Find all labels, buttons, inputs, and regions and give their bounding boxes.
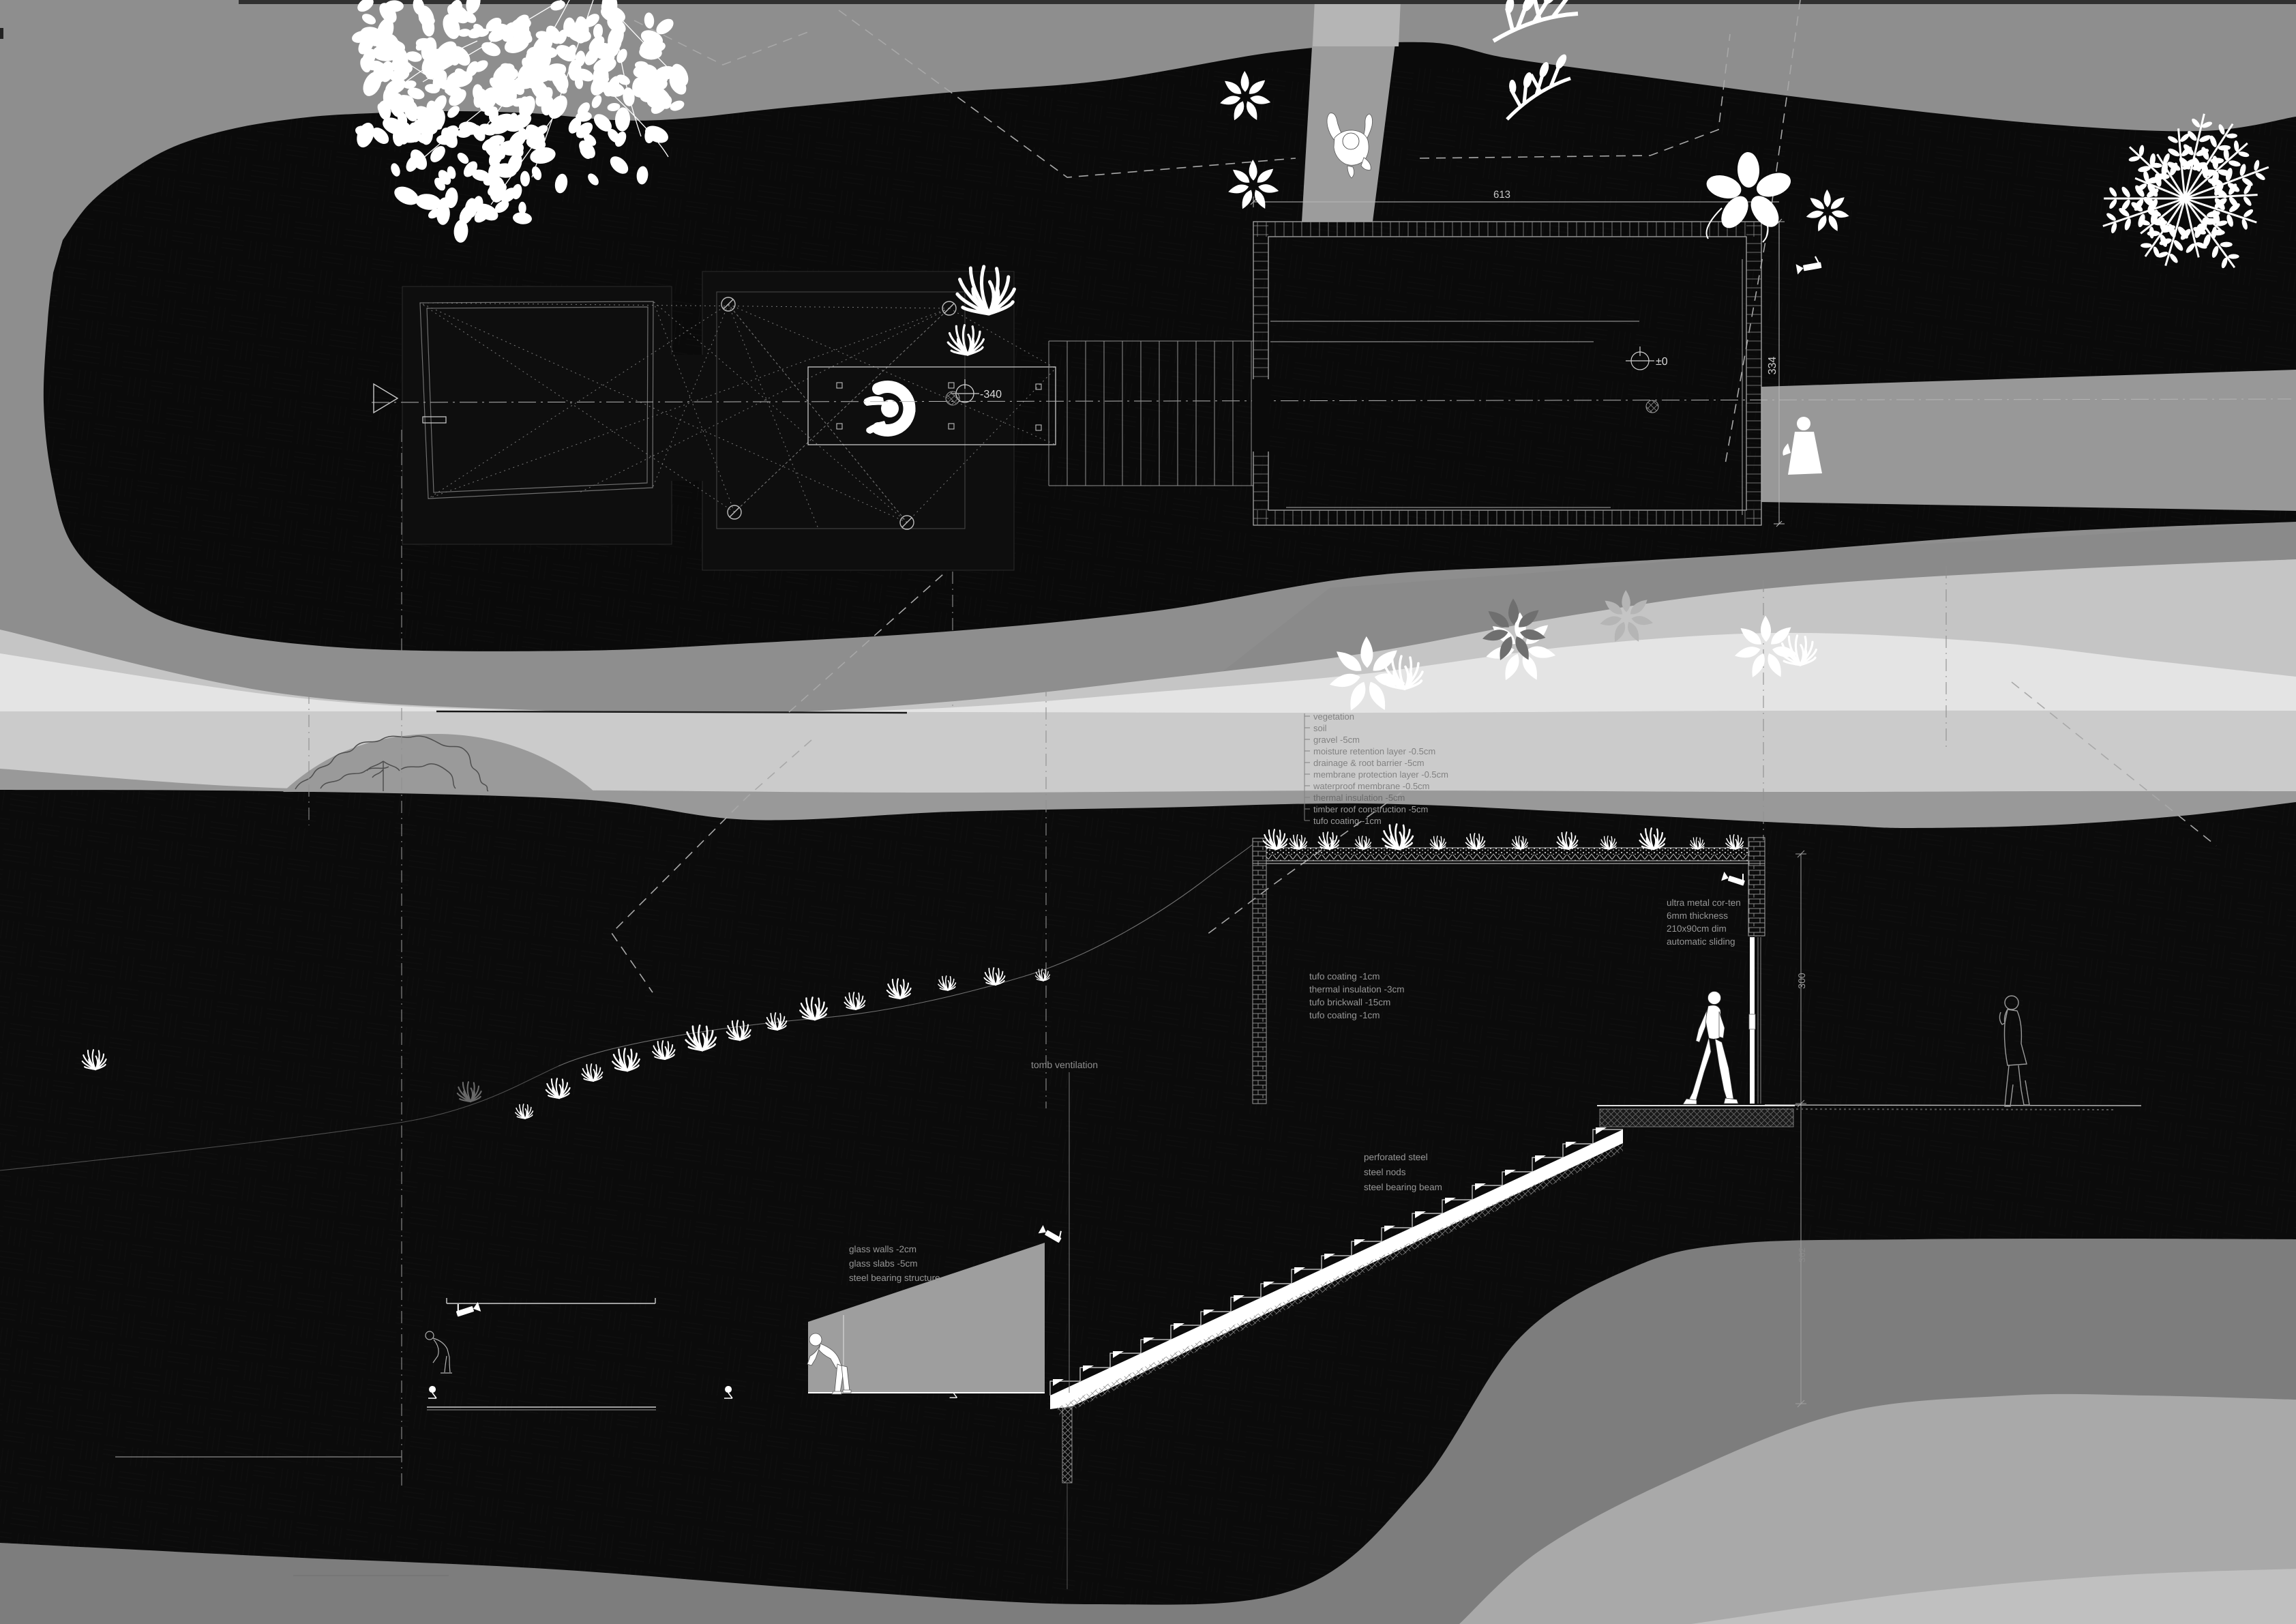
svg-text:vegetation: vegetation — [1313, 711, 1354, 722]
svg-text:glass slabs -5cm: glass slabs -5cm — [849, 1258, 918, 1269]
svg-text:waterproof membrane -0.5cm: waterproof membrane -0.5cm — [1313, 781, 1430, 791]
svg-text:tufo coating -1cm: tufo coating -1cm — [1309, 971, 1380, 981]
svg-text:300: 300 — [1796, 973, 1807, 989]
svg-text:tufo coating -1cm: tufo coating -1cm — [1313, 816, 1382, 826]
svg-text:automatic sliding: automatic sliding — [1667, 936, 1735, 947]
svg-text:362: 362 — [1797, 1247, 1807, 1263]
svg-text:tufo brickwall -15cm: tufo brickwall -15cm — [1309, 997, 1390, 1007]
svg-text:gravel -5cm: gravel -5cm — [1313, 735, 1360, 745]
svg-text:steel bearing beam: steel bearing beam — [1364, 1182, 1442, 1192]
svg-text:613: 613 — [1493, 189, 1510, 201]
svg-text:steel bearing structure: steel bearing structure — [849, 1273, 940, 1283]
svg-text:tufo coating -1cm: tufo coating -1cm — [1309, 1010, 1380, 1020]
svg-text:perforated steel: perforated steel — [1364, 1152, 1428, 1162]
svg-text:steel nods: steel nods — [1364, 1167, 1406, 1177]
svg-text:334: 334 — [1767, 357, 1778, 375]
svg-text:moisture retention layer -0.5c: moisture retention layer -0.5cm — [1313, 746, 1435, 756]
svg-text:soil: soil — [1313, 723, 1327, 733]
svg-text:ultra metal cor-ten: ultra metal cor-ten — [1667, 898, 1741, 908]
svg-text:drainage & root barrier -5cm: drainage & root barrier -5cm — [1313, 758, 1425, 768]
svg-text:±0: ±0 — [1656, 356, 1668, 368]
svg-text:tomb ventilation: tomb ventilation — [1031, 1059, 1098, 1070]
svg-text:membrane protection layer -0.5: membrane protection layer -0.5cm — [1313, 769, 1448, 780]
svg-text:glass walls -2cm: glass walls -2cm — [849, 1244, 916, 1254]
svg-text:thermal insulation -5cm: thermal insulation -5cm — [1313, 793, 1405, 803]
svg-text:thermal insulation -3cm: thermal insulation -3cm — [1309, 984, 1405, 994]
svg-text:6mm thickness: 6mm thickness — [1667, 911, 1728, 921]
svg-text:210x90cm dim: 210x90cm dim — [1667, 924, 1727, 934]
svg-text:timber roof construction -5cm: timber roof construction -5cm — [1313, 804, 1428, 814]
svg-text:-340: -340 — [980, 389, 1002, 400]
